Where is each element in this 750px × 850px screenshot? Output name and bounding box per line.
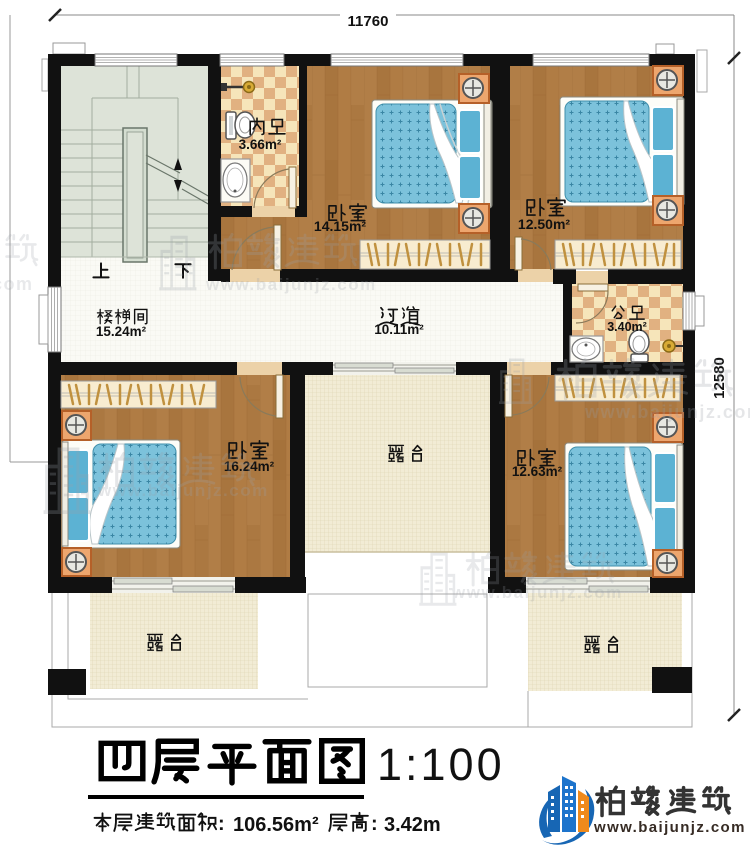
svg-text:12.63m²: 12.63m² <box>512 464 563 479</box>
svg-text:www.baijunjz.com: www.baijunjz.com <box>584 402 750 422</box>
svg-text:15.24m²: 15.24m² <box>96 324 147 339</box>
svg-text:10.11m²: 10.11m² <box>374 322 424 337</box>
svg-text:3.40m²: 3.40m² <box>607 320 647 334</box>
svg-text:12.50m²: 12.50m² <box>518 216 570 232</box>
svg-text:www.baijunjz.com: www.baijunjz.com <box>205 275 377 294</box>
svg-text:106.56m²: 106.56m² <box>233 814 319 836</box>
svg-text:www.baijunjz.com: www.baijunjz.com <box>97 481 269 500</box>
svg-text::: : <box>371 813 378 835</box>
svg-text:11760: 11760 <box>348 13 389 30</box>
svg-text:www.baijunjz.com: www.baijunjz.com <box>451 583 623 602</box>
svg-text::: : <box>218 813 225 835</box>
svg-text:1:100: 1:100 <box>377 739 505 790</box>
svg-text:www.baijunjz.com: www.baijunjz.com <box>593 819 746 836</box>
svg-text:3.42m: 3.42m <box>384 814 441 836</box>
svg-text:3.66m²: 3.66m² <box>239 137 282 152</box>
svg-text:14.15m²: 14.15m² <box>314 218 366 234</box>
svg-text:com: com <box>0 274 34 294</box>
